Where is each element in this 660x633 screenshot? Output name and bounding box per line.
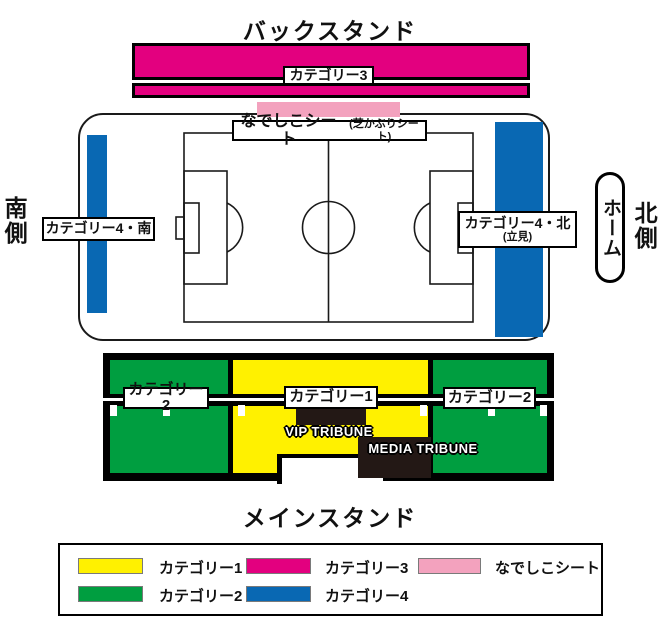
main-stand-title: メインスタンド (0, 499, 660, 533)
legend-label-nadeshiko: なでしこシート (495, 557, 600, 578)
category2-left-label: カテゴリー2 (123, 387, 209, 409)
stadium-seating-chart: バックスタンド カテゴリー3 なでしこシート(芝かぶりシート) カテゴリー4・南 (0, 0, 660, 633)
pitch-diagram (174, 123, 483, 332)
legend-swatch-category1 (78, 558, 143, 574)
home-end-pill: ホーム (595, 172, 625, 283)
legend: カテゴリー1 カテゴリー2 カテゴリー3 カテゴリー4 なでしこシート (58, 543, 603, 616)
nadeshiko-seat-label: なでしこシート(芝かぶりシート) (232, 120, 427, 141)
category3-label: カテゴリー3 (283, 66, 374, 85)
entrance-tick (110, 405, 117, 416)
legend-swatch-category4 (246, 586, 311, 602)
category1-label: カテゴリー1 (284, 386, 378, 409)
category4-north-label-note: (立見) (503, 231, 532, 243)
home-end-label: ホーム (600, 198, 620, 258)
nadeshiko-seat-label-main: なでしこシート (234, 113, 343, 148)
legend-label-category2: カテゴリー2 (159, 585, 242, 606)
back-stand-title: バックスタンド (0, 12, 660, 46)
entrance-tick (420, 405, 427, 416)
category4-south-label: カテゴリー4・南 (42, 217, 155, 241)
legend-label-category3: カテゴリー3 (325, 557, 408, 578)
legend-swatch-nadeshiko (418, 558, 481, 574)
category2-right-label: カテゴリー2 (443, 387, 536, 409)
legend-label-category1: カテゴリー1 (159, 557, 242, 578)
legend-swatch-category3 (246, 558, 311, 574)
legend-swatch-category2 (78, 586, 143, 602)
category4-north-label-main: カテゴリー4・北 (465, 216, 571, 231)
north-side-label: 北側 (632, 201, 656, 251)
goal-area-left (184, 203, 199, 253)
penalty-arc-left (227, 203, 243, 252)
category4-north-label: カテゴリー4・北 (立見) (458, 211, 577, 248)
nadeshiko-seat-label-sub: (芝かぶりシート) (343, 118, 425, 142)
south-side-label: 南側 (2, 196, 26, 246)
media-tribune-label: MEDIA TRIBUNE (363, 441, 483, 456)
category2-right-section (433, 360, 547, 473)
entrance-tick (238, 405, 245, 416)
category2-left-section (110, 360, 228, 473)
penalty-arc-right (414, 203, 430, 252)
legend-label-category4: カテゴリー4 (325, 585, 408, 606)
entrance-tick (540, 405, 547, 416)
goal-left (176, 217, 184, 239)
penalty-area-left (184, 171, 227, 284)
back-stand-lower-tier (132, 83, 530, 98)
